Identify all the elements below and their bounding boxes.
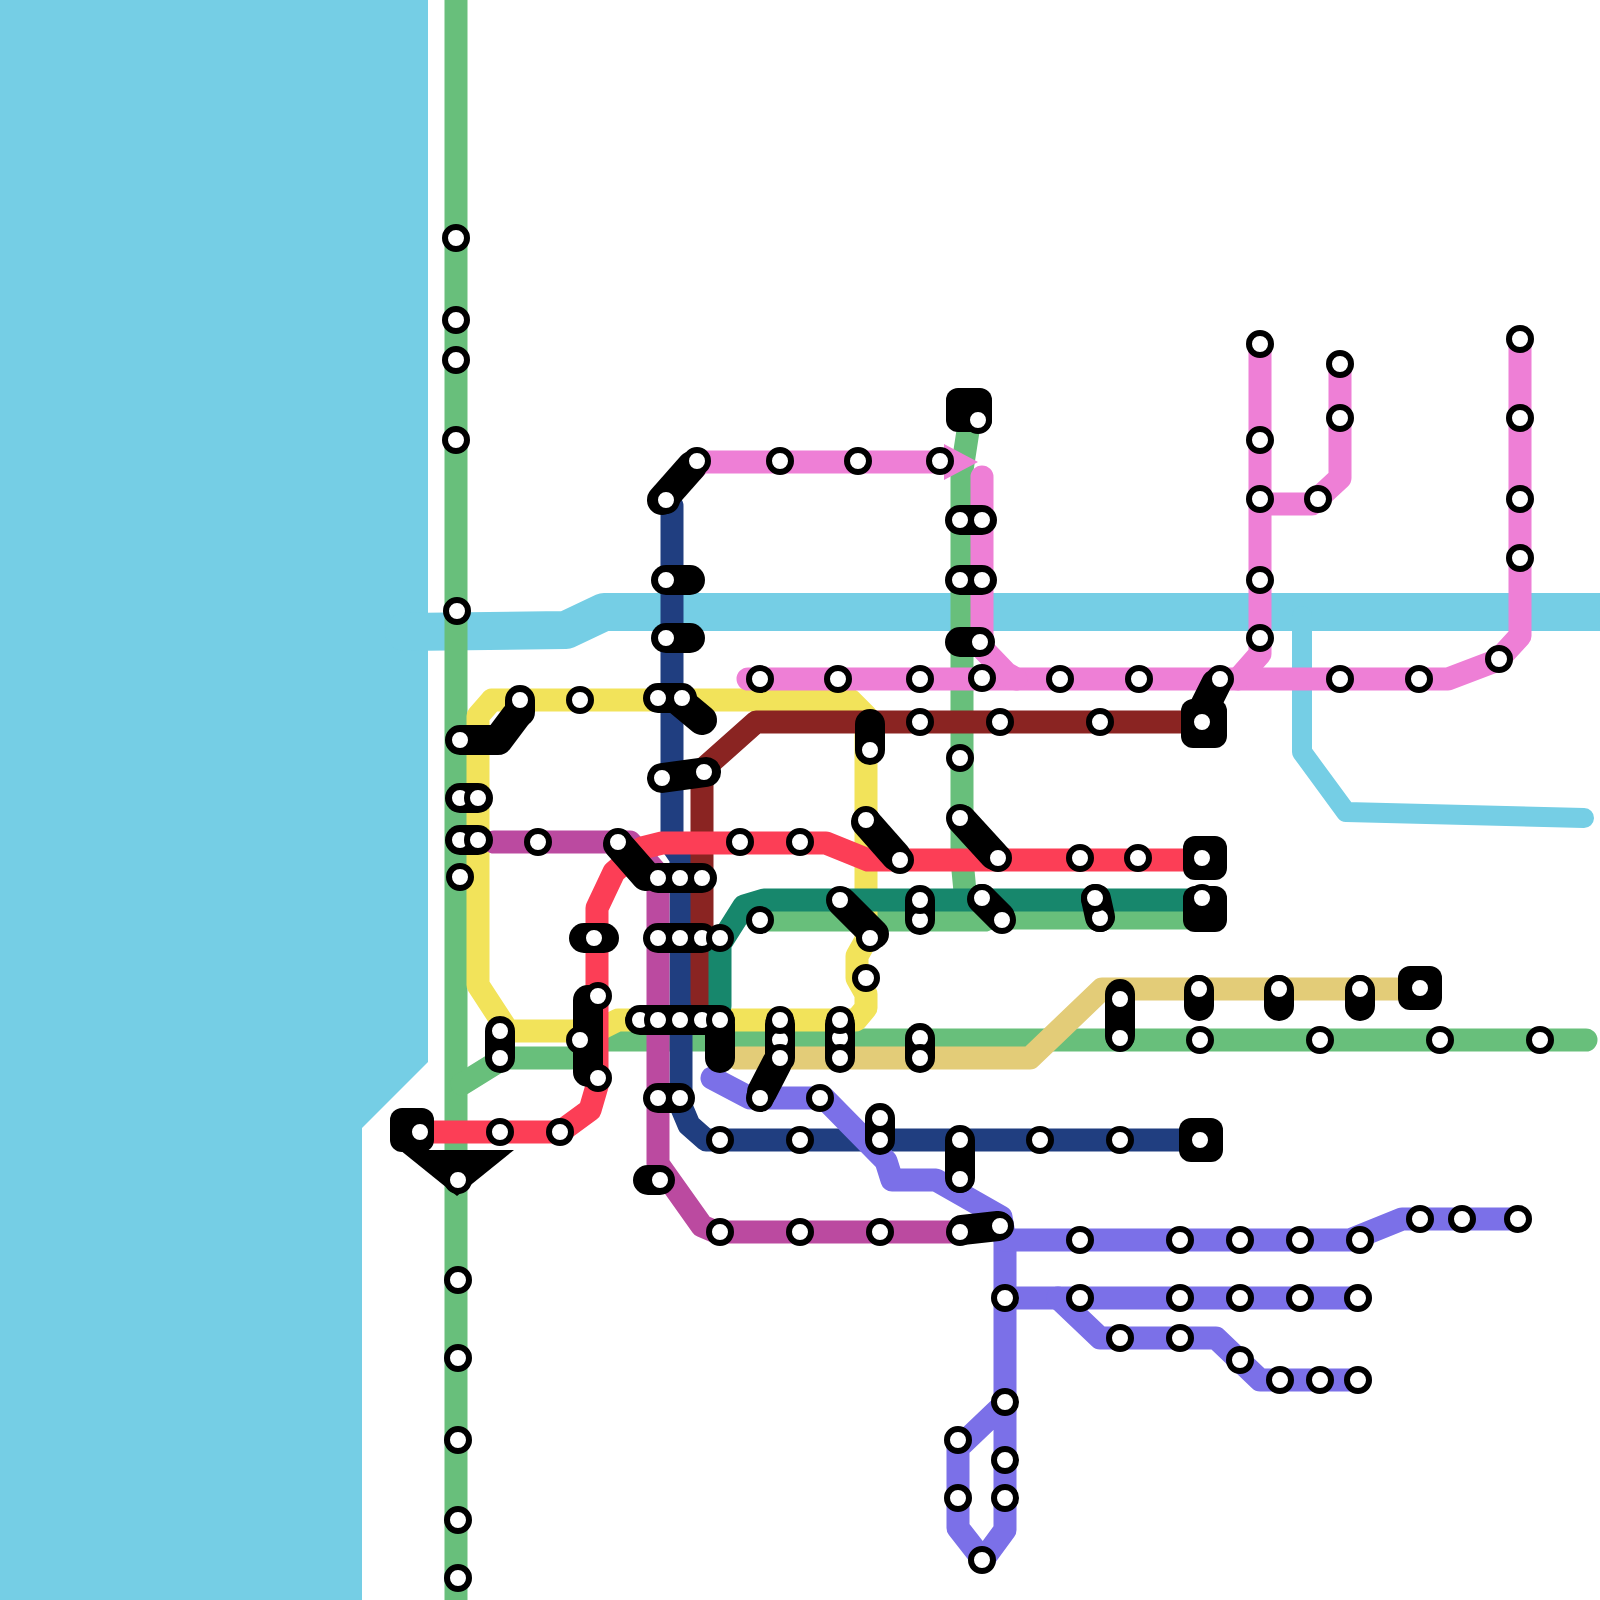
station-green-trunk[interactable] bbox=[445, 227, 467, 249]
station-pink[interactable] bbox=[929, 450, 951, 472]
station-yellow[interactable] bbox=[671, 687, 693, 709]
station-green-east[interactable] bbox=[1529, 1029, 1551, 1051]
station-pink[interactable] bbox=[1249, 333, 1271, 355]
station-teal[interactable] bbox=[909, 889, 931, 911]
station-navy[interactable] bbox=[655, 489, 677, 511]
station-yellow[interactable] bbox=[855, 967, 877, 989]
station-periwinkle[interactable] bbox=[1169, 1229, 1191, 1251]
station-pink[interactable] bbox=[1209, 668, 1231, 690]
station-pink[interactable] bbox=[1329, 353, 1351, 375]
station-red[interactable] bbox=[409, 1121, 431, 1143]
station-periwinkle[interactable] bbox=[971, 1549, 993, 1571]
station-navy[interactable] bbox=[869, 1129, 891, 1151]
station-pink[interactable] bbox=[909, 668, 931, 690]
station-green-west[interactable] bbox=[991, 909, 1013, 931]
station-purple[interactable] bbox=[527, 831, 549, 853]
station-yellow[interactable] bbox=[669, 1009, 691, 1031]
station-periwinkle[interactable] bbox=[1269, 1369, 1291, 1391]
station-yellow[interactable] bbox=[859, 927, 881, 949]
station-periwinkle[interactable] bbox=[1289, 1229, 1311, 1251]
station-pink[interactable] bbox=[971, 667, 993, 689]
station-green-trunk[interactable] bbox=[446, 600, 468, 622]
station-red[interactable] bbox=[889, 849, 911, 871]
river-branch bbox=[1302, 616, 1584, 818]
station-navy[interactable] bbox=[651, 767, 673, 789]
station-pink[interactable] bbox=[969, 631, 991, 653]
lake-water bbox=[0, 0, 428, 1600]
station-yellow[interactable] bbox=[855, 809, 877, 831]
station-green-east[interactable] bbox=[1109, 1027, 1131, 1049]
station-green-north[interactable] bbox=[949, 747, 971, 769]
metro-line-pink-fork-middle bbox=[1264, 364, 1340, 504]
station-tan[interactable] bbox=[1409, 977, 1431, 999]
station-purple[interactable] bbox=[949, 1221, 971, 1243]
station-red[interactable] bbox=[1127, 847, 1149, 869]
station-pink[interactable] bbox=[1049, 668, 1071, 690]
station-periwinkle[interactable] bbox=[1229, 1287, 1251, 1309]
station-yellow[interactable] bbox=[509, 689, 531, 711]
station-teal[interactable] bbox=[971, 887, 993, 909]
station-red[interactable] bbox=[1069, 847, 1091, 869]
station-green-east[interactable] bbox=[1429, 1029, 1451, 1051]
station-pink[interactable] bbox=[1249, 488, 1271, 510]
station-green-north[interactable] bbox=[949, 807, 971, 829]
station-periwinkle[interactable] bbox=[994, 1487, 1016, 1509]
station-navy[interactable] bbox=[669, 867, 691, 889]
station-red[interactable] bbox=[583, 927, 605, 949]
station-green-trunk[interactable] bbox=[447, 1429, 469, 1451]
transit-map-canvas[interactable] bbox=[0, 0, 1600, 1600]
station-navy[interactable] bbox=[789, 1129, 811, 1151]
station-green-east[interactable] bbox=[1309, 1029, 1331, 1051]
station-navy[interactable] bbox=[709, 1129, 731, 1151]
station-teal[interactable] bbox=[1084, 887, 1106, 909]
station-green-trunk[interactable] bbox=[449, 866, 471, 888]
station-navy[interactable] bbox=[1029, 1129, 1051, 1151]
station-periwinkle[interactable] bbox=[1507, 1208, 1529, 1230]
station-green-east[interactable] bbox=[1189, 1029, 1211, 1051]
station-purple[interactable] bbox=[647, 867, 669, 889]
station-periwinkle[interactable] bbox=[1347, 1369, 1369, 1391]
station-pink[interactable] bbox=[971, 569, 993, 591]
station-green-trunk[interactable] bbox=[449, 729, 471, 751]
station-periwinkle[interactable] bbox=[1069, 1229, 1091, 1251]
station-green-west[interactable] bbox=[749, 909, 771, 931]
station-periwinkle[interactable] bbox=[1069, 1287, 1091, 1309]
station-green-north[interactable] bbox=[949, 569, 971, 591]
station-red[interactable] bbox=[549, 1121, 571, 1143]
station-pink[interactable] bbox=[1509, 547, 1531, 569]
station-pink[interactable] bbox=[1509, 407, 1531, 429]
station-red[interactable] bbox=[987, 847, 1009, 869]
station-yellow[interactable] bbox=[647, 1009, 669, 1031]
station-navy[interactable] bbox=[655, 569, 677, 591]
station-purple[interactable] bbox=[647, 1087, 669, 1109]
station-periwinkle[interactable] bbox=[869, 1107, 891, 1129]
station-periwinkle[interactable] bbox=[1309, 1369, 1331, 1391]
station-red[interactable] bbox=[587, 985, 609, 1007]
station-periwinkle[interactable] bbox=[1229, 1349, 1251, 1371]
station-teal[interactable] bbox=[1191, 887, 1213, 909]
station-periwinkle[interactable] bbox=[1451, 1208, 1473, 1230]
station-red[interactable] bbox=[1191, 847, 1213, 869]
station-pink[interactable] bbox=[1249, 569, 1271, 591]
station-navy[interactable] bbox=[669, 927, 691, 949]
station-purple[interactable] bbox=[789, 1221, 811, 1243]
station-dark-red[interactable] bbox=[859, 739, 881, 761]
station-green-trunk[interactable] bbox=[447, 1347, 469, 1369]
station-tan[interactable] bbox=[909, 1047, 931, 1069]
station-purple[interactable] bbox=[647, 927, 669, 949]
station-purple[interactable] bbox=[607, 831, 629, 853]
station-yellow[interactable] bbox=[569, 689, 591, 711]
station-periwinkle[interactable] bbox=[949, 1168, 971, 1190]
station-dark-red[interactable] bbox=[1089, 711, 1111, 733]
station-pink[interactable] bbox=[1488, 648, 1510, 670]
station-pink[interactable] bbox=[1329, 668, 1351, 690]
station-green-east[interactable] bbox=[489, 1047, 511, 1069]
station-periwinkle[interactable] bbox=[989, 1215, 1011, 1237]
station-dark-red[interactable] bbox=[909, 711, 931, 733]
station-green-north[interactable] bbox=[967, 409, 989, 431]
station-green-trunk[interactable] bbox=[447, 1509, 469, 1531]
station-red[interactable] bbox=[729, 831, 751, 853]
station-periwinkle[interactable] bbox=[994, 1287, 1016, 1309]
station-pink[interactable] bbox=[1249, 429, 1271, 451]
station-tan[interactable] bbox=[1109, 988, 1131, 1010]
station-tan[interactable] bbox=[1268, 978, 1290, 1000]
station-purple[interactable] bbox=[709, 1221, 731, 1243]
station-periwinkle[interactable] bbox=[994, 1391, 1016, 1413]
station-pink[interactable] bbox=[971, 509, 993, 531]
station-dark-red[interactable] bbox=[691, 867, 713, 889]
station-periwinkle[interactable] bbox=[749, 1087, 771, 1109]
station-periwinkle[interactable] bbox=[1289, 1287, 1311, 1309]
station-navy[interactable] bbox=[655, 627, 677, 649]
station-yellow[interactable] bbox=[467, 787, 489, 809]
station-pink[interactable] bbox=[1408, 668, 1430, 690]
station-dark-red[interactable] bbox=[989, 711, 1011, 733]
station-green-trunk[interactable] bbox=[445, 309, 467, 331]
station-pink[interactable] bbox=[847, 450, 869, 472]
station-purple[interactable] bbox=[869, 1221, 891, 1243]
station-navy[interactable] bbox=[1189, 1129, 1211, 1151]
station-yellow[interactable] bbox=[769, 1009, 791, 1031]
river-main bbox=[404, 612, 1600, 632]
station-navy[interactable] bbox=[669, 1087, 691, 1109]
station-dark-red[interactable] bbox=[693, 761, 715, 783]
station-pink[interactable] bbox=[1329, 407, 1351, 429]
station-red[interactable] bbox=[789, 831, 811, 853]
station-periwinkle[interactable] bbox=[947, 1429, 969, 1451]
station-periwinkle[interactable] bbox=[1229, 1229, 1251, 1251]
station-green-trunk[interactable] bbox=[445, 349, 467, 371]
station-green-trunk[interactable] bbox=[447, 1269, 469, 1291]
station-yellow[interactable] bbox=[467, 829, 489, 851]
station-dark-red[interactable] bbox=[1191, 711, 1213, 733]
station-pink[interactable] bbox=[1509, 488, 1531, 510]
station-pink[interactable] bbox=[1249, 627, 1271, 649]
station-green-trunk[interactable] bbox=[445, 429, 467, 451]
station-pink[interactable] bbox=[827, 668, 849, 690]
station-red[interactable] bbox=[489, 1121, 511, 1143]
station-yellow[interactable] bbox=[647, 687, 669, 709]
station-periwinkle[interactable] bbox=[1349, 1229, 1371, 1251]
station-pink[interactable] bbox=[749, 668, 771, 690]
station-teal[interactable] bbox=[829, 889, 851, 911]
station-green-trunk[interactable] bbox=[447, 1567, 469, 1589]
station-pink[interactable] bbox=[686, 450, 708, 472]
station-yellow[interactable] bbox=[489, 1020, 511, 1042]
station-tan[interactable] bbox=[1188, 978, 1210, 1000]
station-periwinkle[interactable] bbox=[809, 1087, 831, 1109]
station-periwinkle[interactable] bbox=[1109, 1327, 1131, 1349]
station-green-north[interactable] bbox=[949, 509, 971, 531]
station-periwinkle[interactable] bbox=[1169, 1327, 1191, 1349]
station-tan[interactable] bbox=[829, 1047, 851, 1069]
station-periwinkle[interactable] bbox=[1347, 1287, 1369, 1309]
station-pink[interactable] bbox=[1307, 488, 1329, 510]
station-yellow[interactable] bbox=[709, 1009, 731, 1031]
station-pink[interactable] bbox=[1509, 328, 1531, 350]
station-navy[interactable] bbox=[949, 1129, 971, 1151]
station-pink[interactable] bbox=[769, 450, 791, 472]
station-navy[interactable] bbox=[1109, 1129, 1131, 1151]
station-tan[interactable] bbox=[769, 1047, 791, 1069]
transit-map-screen bbox=[0, 0, 1600, 1600]
station-tan[interactable] bbox=[1349, 978, 1371, 1000]
station-pink[interactable] bbox=[1128, 668, 1150, 690]
station-periwinkle[interactable] bbox=[947, 1487, 969, 1509]
station-periwinkle[interactable] bbox=[1169, 1287, 1191, 1309]
station-purple[interactable] bbox=[649, 1169, 671, 1191]
station-green-east[interactable] bbox=[569, 1029, 591, 1051]
station-periwinkle[interactable] bbox=[994, 1449, 1016, 1471]
station-teal[interactable] bbox=[709, 927, 731, 949]
station-green-trunk[interactable] bbox=[447, 1169, 469, 1191]
station-periwinkle[interactable] bbox=[1409, 1208, 1431, 1230]
station-red[interactable] bbox=[587, 1067, 609, 1089]
station-yellow[interactable] bbox=[829, 1009, 851, 1031]
